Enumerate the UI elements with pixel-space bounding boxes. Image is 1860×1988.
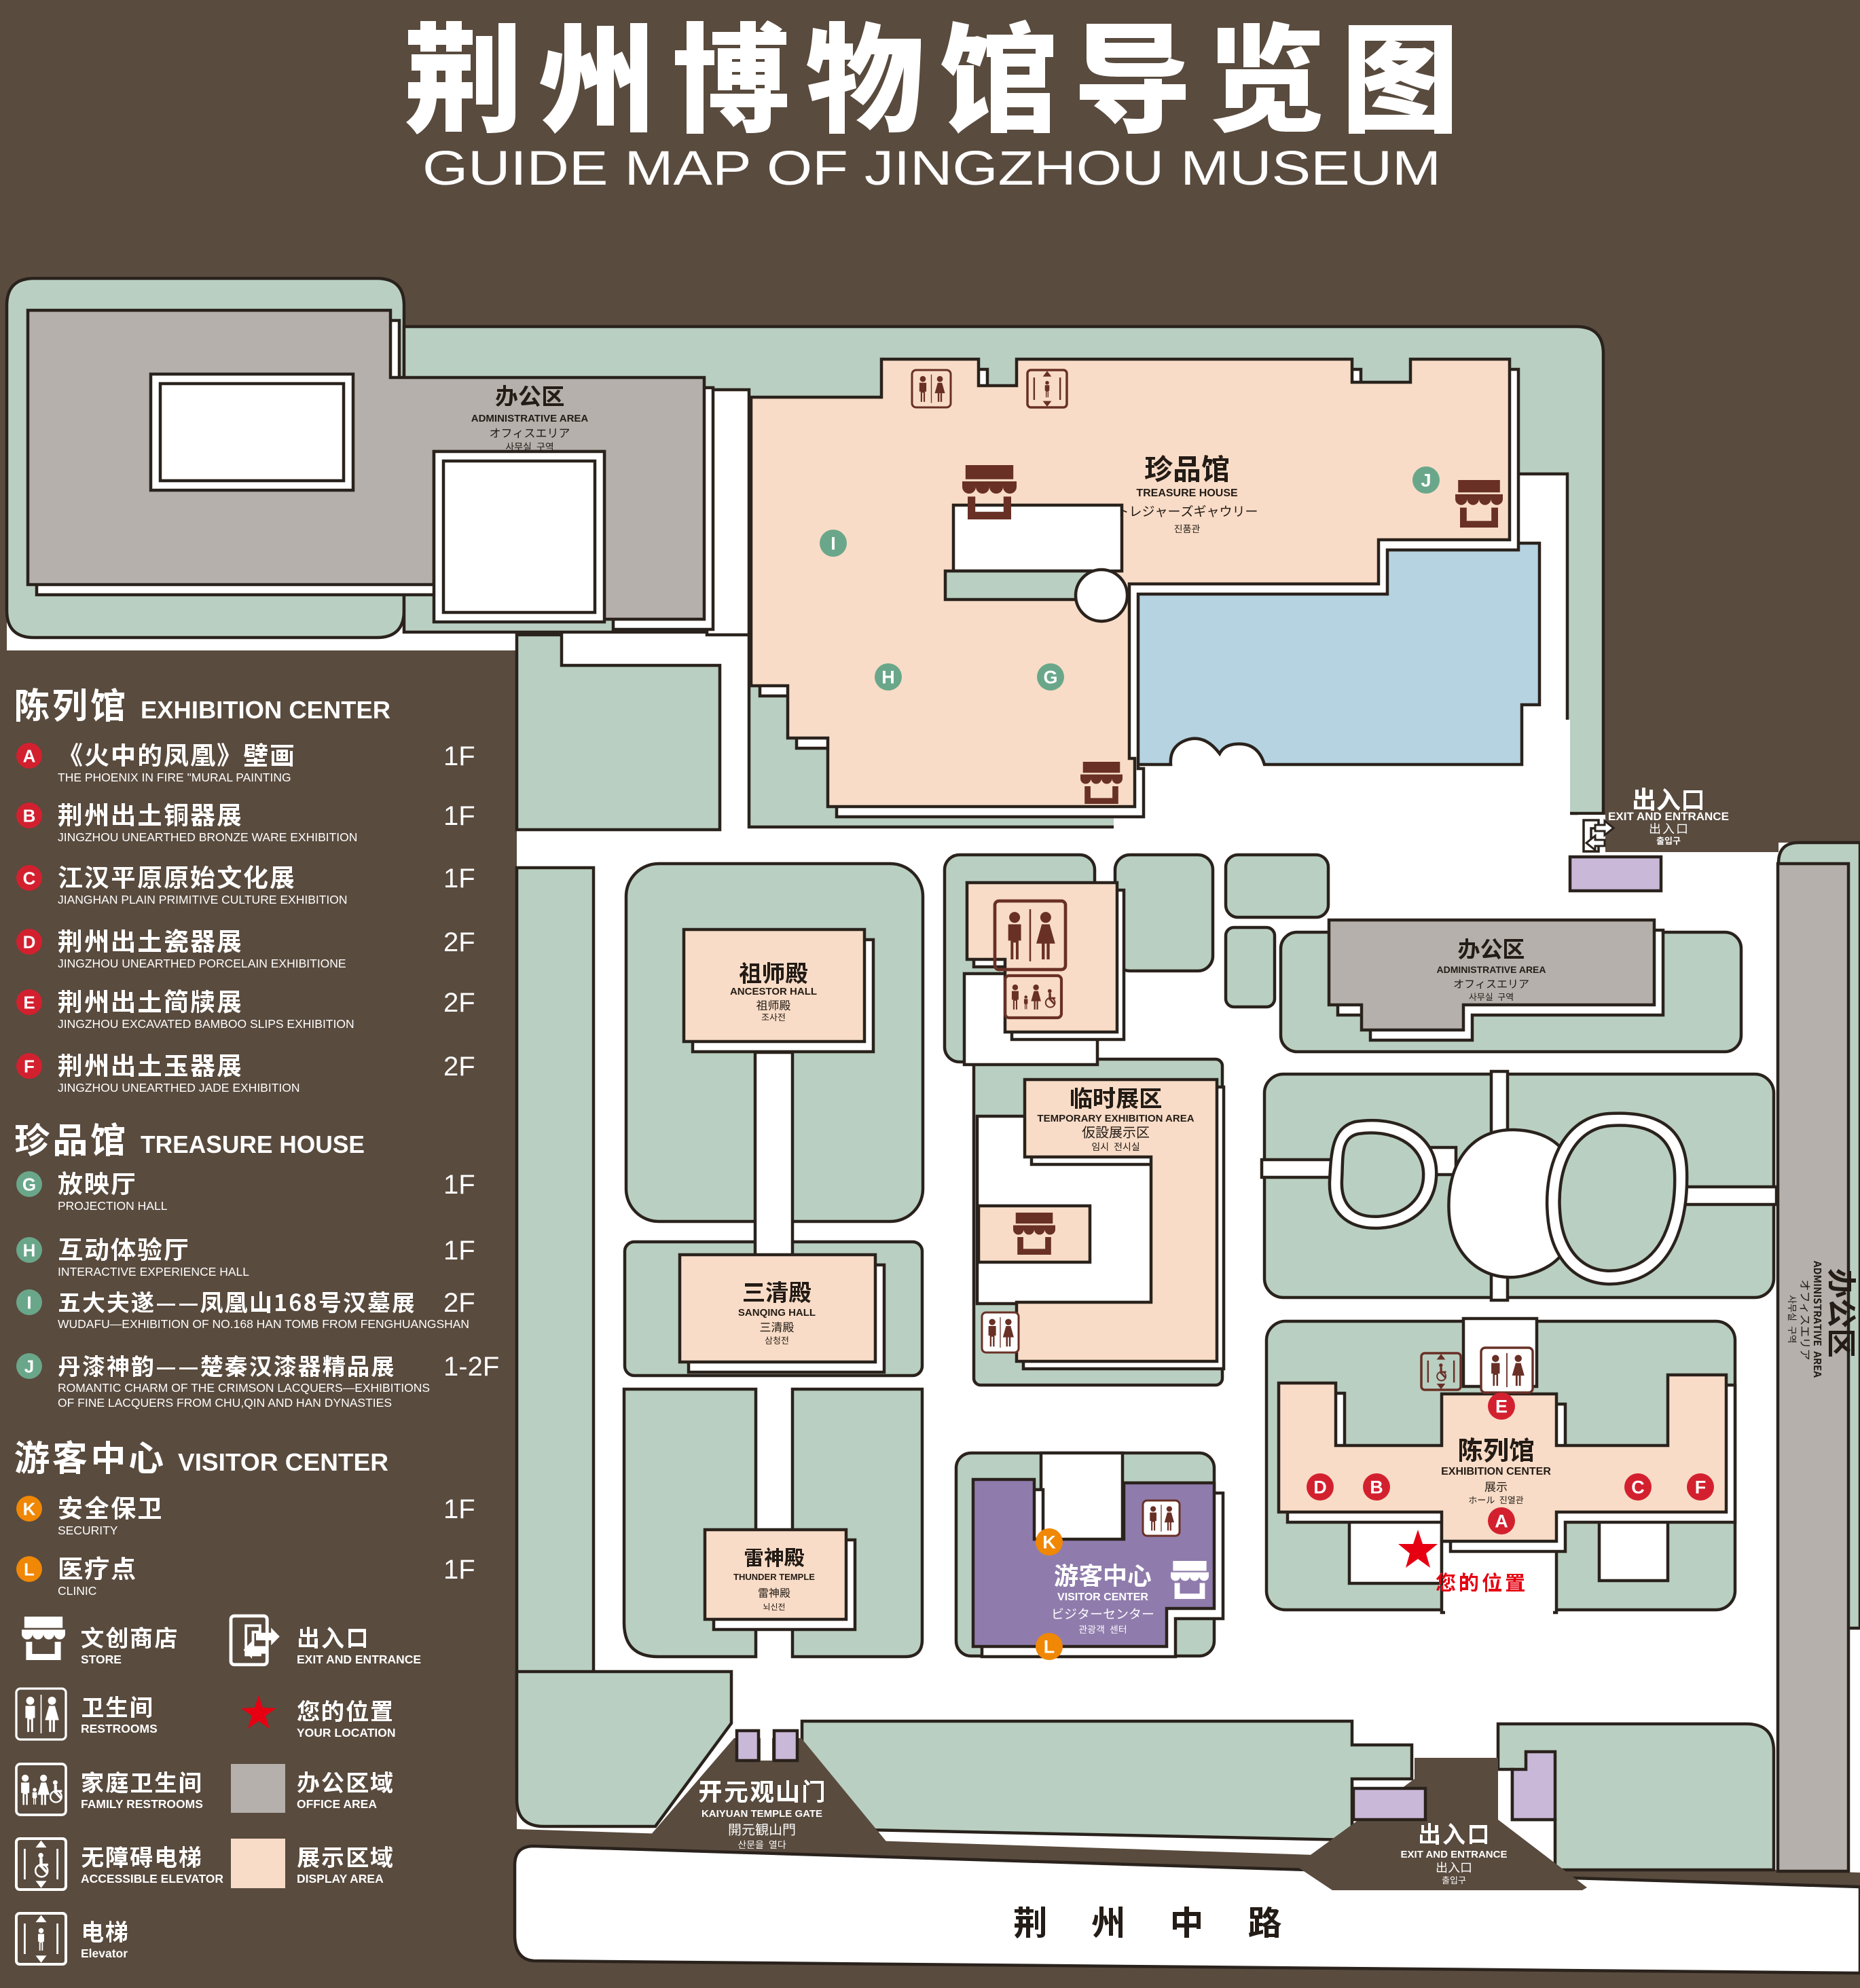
svg-text:J: J (1421, 471, 1431, 491)
svg-text:E: E (23, 992, 35, 1012)
svg-text:I: I (831, 534, 836, 554)
svg-text:KAIYUAN TEMPLE GATE: KAIYUAN TEMPLE GATE (701, 1808, 822, 1820)
svg-text:A: A (1495, 1511, 1508, 1532)
svg-text:ACCESSIBLE ELEVATOR: ACCESSIBLE ELEVATOR (81, 1872, 223, 1885)
svg-text:DISPLAY AREA: DISPLAY AREA (297, 1872, 384, 1885)
svg-text:1F: 1F (443, 741, 475, 771)
svg-text:EXIT AND ENTRANCE: EXIT AND ENTRANCE (1608, 810, 1729, 823)
svg-text:THE PHOENIX IN FIRE "MURAL PAI: THE PHOENIX IN FIRE "MURAL PAINTING (58, 771, 291, 784)
svg-text:1F: 1F (443, 864, 475, 894)
svg-text:C: C (23, 868, 36, 888)
svg-text:VISITOR CENTER: VISITOR CENTER (1057, 1591, 1148, 1603)
svg-text:H: H (881, 667, 895, 688)
svg-text:TEMPORARY EXHIBITION AREA: TEMPORARY EXHIBITION AREA (1037, 1113, 1194, 1124)
svg-text:E: E (1495, 1397, 1508, 1417)
svg-text:FAMILY RESTROOMS: FAMILY RESTROOMS (81, 1797, 203, 1811)
svg-text:ADMINISTRATIVE AREA: ADMINISTRATIVE AREA (1437, 964, 1546, 975)
svg-text:JIANGHAN PLAIN PRIMITIVE CULTU: JIANGHAN PLAIN PRIMITIVE CULTURE EXHIBIT… (58, 893, 348, 906)
svg-text:EXHIBITION CENTER: EXHIBITION CENTER (1441, 1466, 1551, 1477)
svg-text:STORE: STORE (81, 1653, 122, 1666)
svg-text:1F: 1F (443, 1555, 475, 1585)
svg-text:JINGZHOU UNEARTHED BRONZE WARE: JINGZHOU UNEARTHED BRONZE WARE EXHIBITIO… (58, 830, 357, 844)
svg-text:OFFICE AREA: OFFICE AREA (297, 1797, 377, 1811)
svg-text:EXIT AND ENTRANCE: EXIT AND ENTRANCE (1401, 1849, 1508, 1860)
svg-text:EXHIBITION CENTER: EXHIBITION CENTER (141, 696, 390, 724)
svg-text:1F: 1F (443, 1236, 475, 1266)
svg-text:TREASURE HOUSE: TREASURE HOUSE (1136, 487, 1238, 499)
svg-text:OF FINE LACQUERS FROM CHU,QIN: OF FINE LACQUERS FROM CHU,QIN AND HAN DY… (58, 1396, 392, 1410)
svg-text:JINGZHOU UNEARTHED JADE EXHIBI: JINGZHOU UNEARTHED JADE EXHIBITION (58, 1081, 300, 1094)
svg-text:G: G (22, 1174, 36, 1194)
svg-text:SANQING HALL: SANQING HALL (738, 1307, 816, 1319)
svg-text:D: D (1313, 1477, 1327, 1498)
svg-text:K: K (23, 1498, 36, 1519)
svg-text:C: C (1631, 1477, 1645, 1498)
svg-text:THUNDER TEMPLE: THUNDER TEMPLE (733, 1572, 815, 1582)
svg-text:I: I (26, 1292, 31, 1312)
svg-text:YOUR LOCATION: YOUR LOCATION (297, 1726, 396, 1739)
svg-text:Elevator: Elevator (81, 1947, 128, 1960)
svg-text:J: J (24, 1356, 34, 1376)
svg-text:L: L (24, 1559, 35, 1579)
svg-text:INTERACTIVE EXPERIENCE HALL: INTERACTIVE EXPERIENCE HALL (58, 1265, 249, 1278)
svg-text:ROMANTIC CHARM OF THE CRIMSON: ROMANTIC CHARM OF THE CRIMSON LACQUERS—E… (58, 1381, 430, 1395)
svg-text:ANCESTOR HALL: ANCESTOR HALL (730, 986, 817, 997)
svg-text:GUIDE MAP OF JINGZHOU MUSEUM: GUIDE MAP OF JINGZHOU MUSEUM (422, 142, 1441, 196)
svg-text:2F: 2F (443, 927, 475, 957)
svg-text:2F: 2F (443, 1052, 475, 1082)
svg-text:K: K (1042, 1532, 1056, 1553)
svg-text:A: A (23, 745, 36, 766)
svg-text:D: D (23, 932, 36, 952)
svg-text:TREASURE HOUSE: TREASURE HOUSE (141, 1130, 365, 1158)
svg-text:1-2F: 1-2F (443, 1352, 499, 1382)
svg-text:F: F (24, 1056, 35, 1076)
svg-text:EXIT AND ENTRANCE: EXIT AND ENTRANCE (297, 1653, 421, 1666)
svg-text:ADMINISTRATIVE AREA: ADMINISTRATIVE AREA (471, 413, 589, 424)
svg-text:B: B (23, 805, 36, 826)
svg-text:RESTROOMS: RESTROOMS (81, 1722, 158, 1735)
svg-text:CLINIC: CLINIC (58, 1584, 96, 1598)
svg-text:VISITOR CENTER: VISITOR CENTER (178, 1448, 388, 1476)
svg-text:H: H (23, 1240, 36, 1260)
svg-text:JINGZHOU EXCAVATED BAMBOO SLIP: JINGZHOU EXCAVATED BAMBOO SLIPS EXHIBITI… (58, 1017, 354, 1031)
svg-text:B: B (1370, 1477, 1383, 1498)
svg-text:G: G (1043, 667, 1057, 688)
svg-text:1F: 1F (443, 1170, 475, 1200)
svg-text:L: L (1044, 1637, 1055, 1657)
svg-text:WUDAFU—EXHIBITION OF NO.168 HA: WUDAFU—EXHIBITION OF NO.168 HAN TOMB FRO… (58, 1317, 469, 1331)
svg-text:2F: 2F (443, 1288, 475, 1318)
svg-text:2F: 2F (443, 988, 475, 1018)
svg-text:SECURITY: SECURITY (58, 1524, 118, 1537)
svg-text:F: F (1695, 1477, 1707, 1498)
svg-text:PROJECTION HALL: PROJECTION HALL (58, 1199, 168, 1213)
svg-text:1F: 1F (443, 801, 475, 831)
svg-text:JINGZHOU UNEARTHED PORCELAIN E: JINGZHOU UNEARTHED PORCELAIN EXHIBITIONE (58, 957, 346, 970)
svg-text:1F: 1F (443, 1494, 475, 1524)
